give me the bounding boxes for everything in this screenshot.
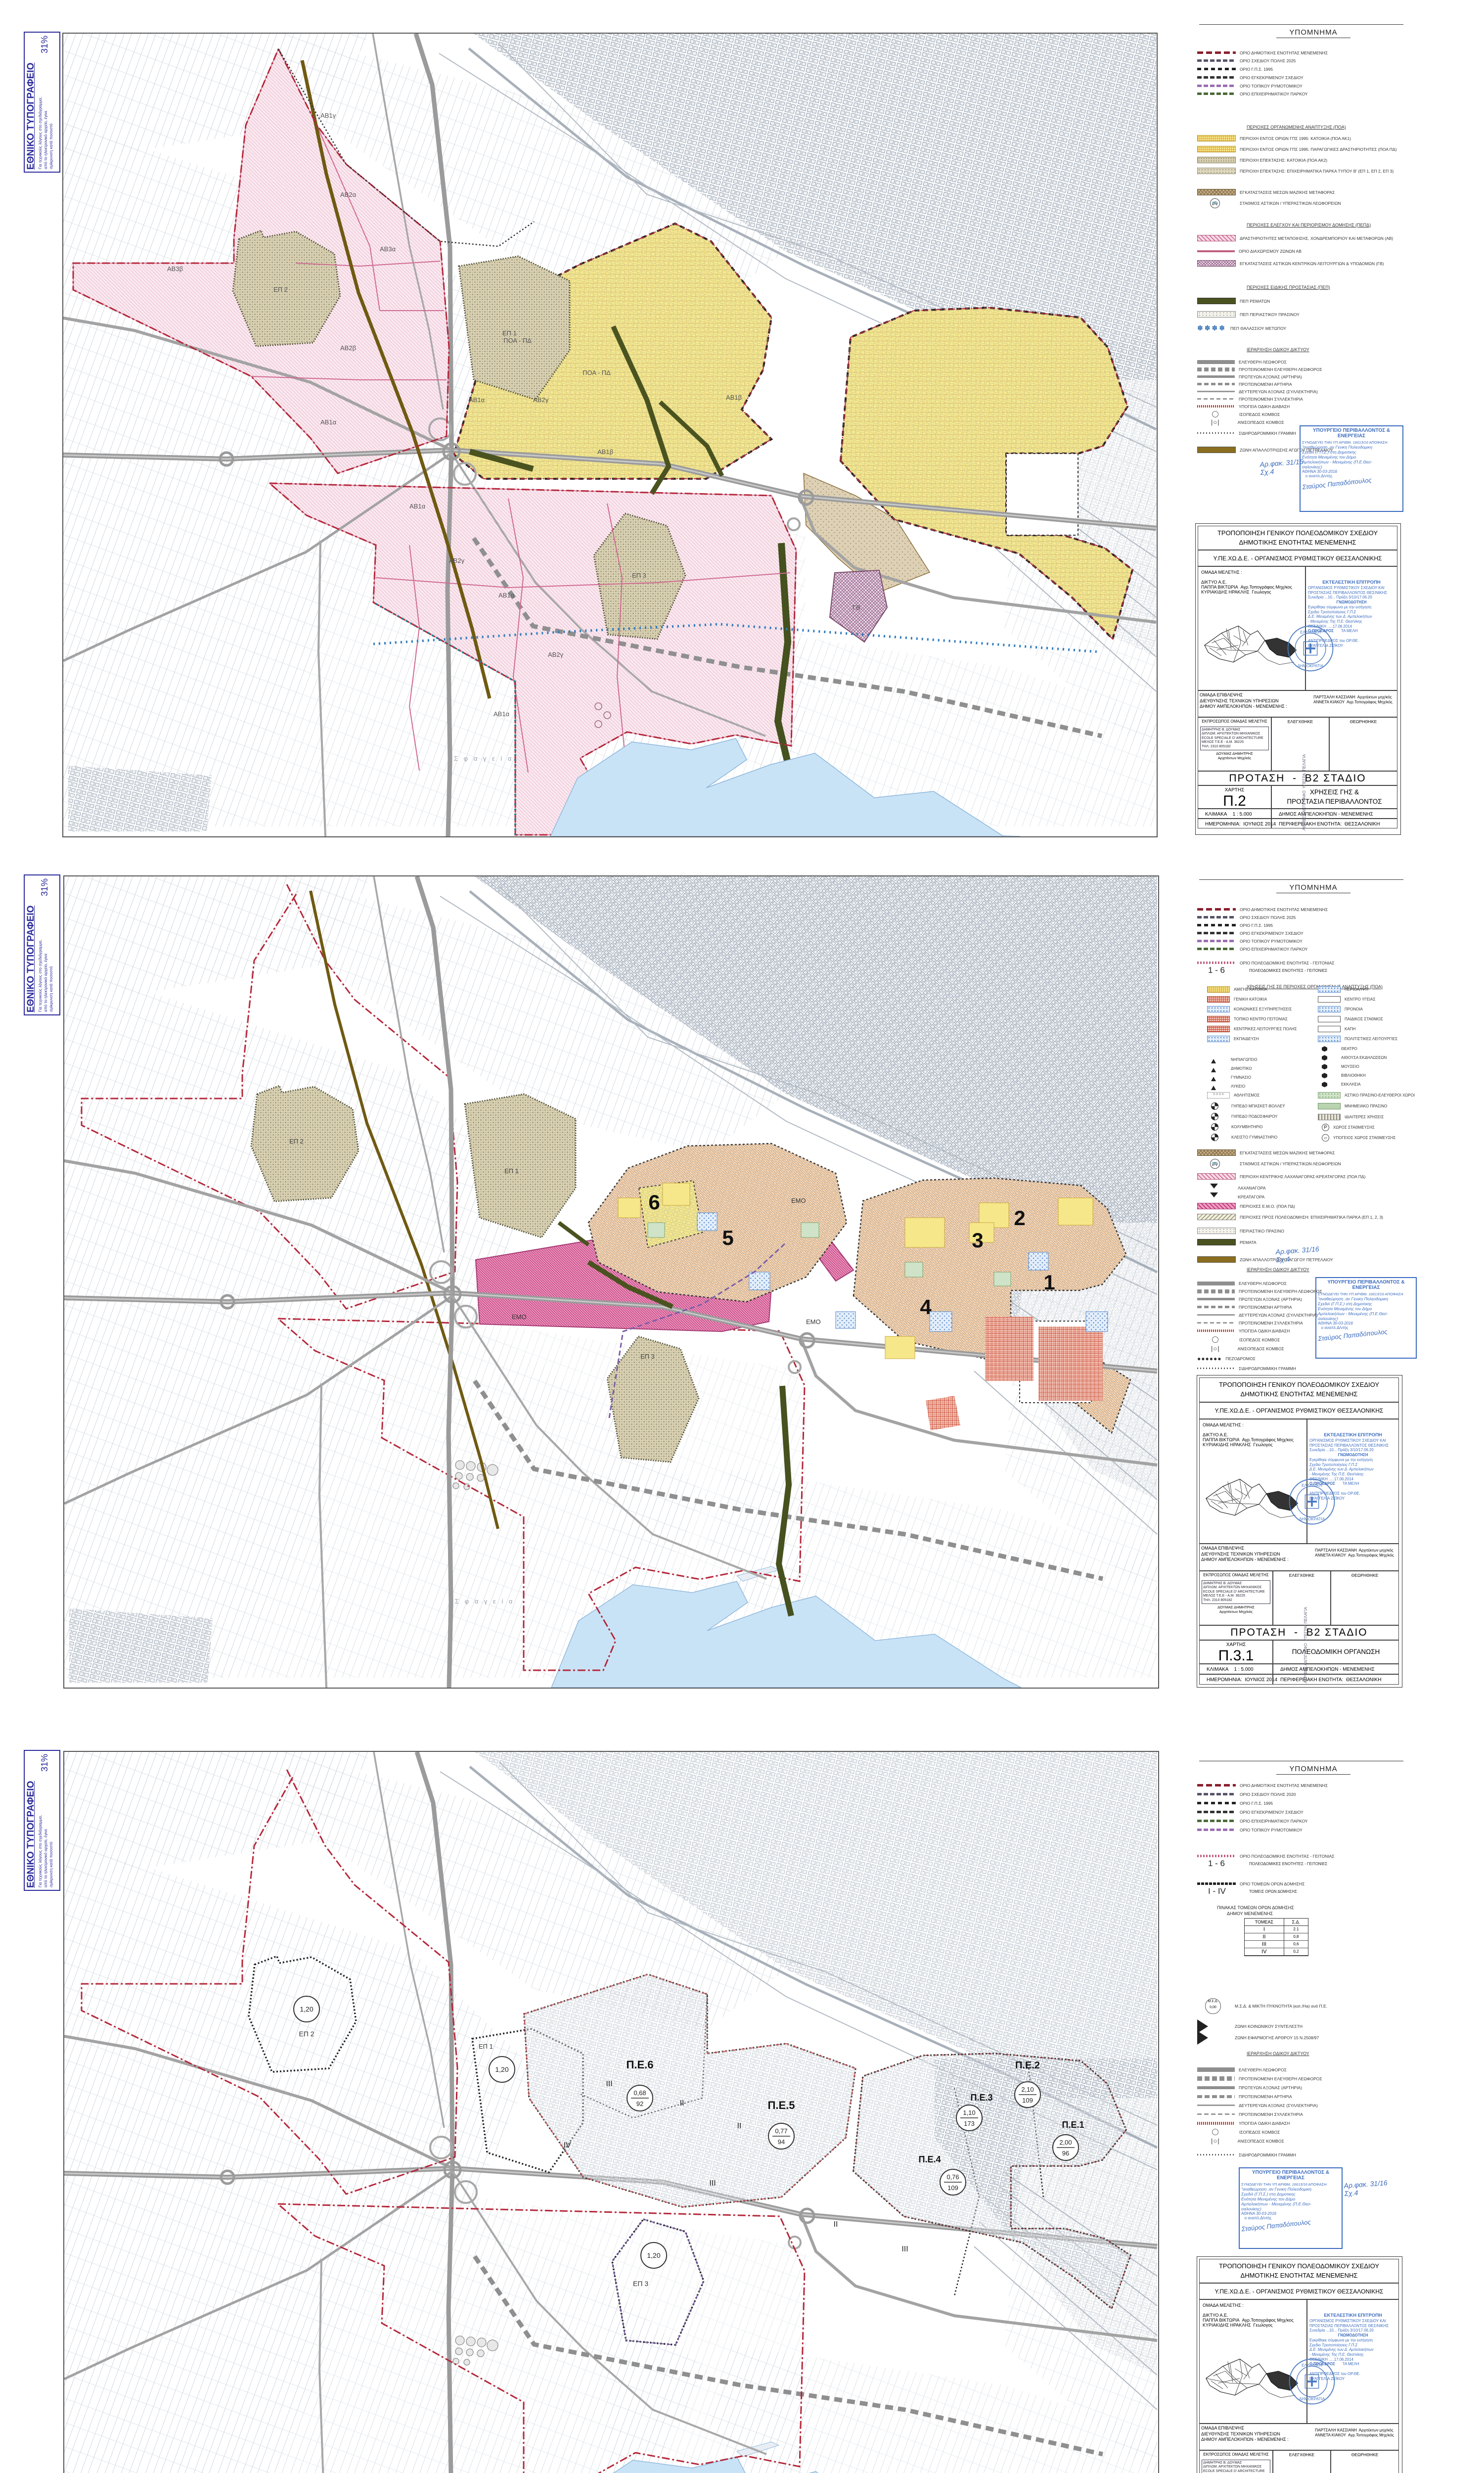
- svg-text:AB3β: AB3β: [167, 265, 183, 273]
- svg-text:AB1α: AB1α: [498, 592, 515, 599]
- svg-text:ΕΛΛΗΝΙΚΗ: ΕΛΛΗΝΙΚΗ: [1302, 1483, 1322, 1488]
- svg-text:0,76: 0,76: [946, 2173, 959, 2181]
- svg-text:0,68: 0,68: [633, 2089, 646, 2097]
- svg-text:AB2γ: AB2γ: [548, 651, 564, 658]
- svg-text:ΕΠ 1: ΕΠ 1: [502, 329, 517, 337]
- svg-text:109: 109: [947, 2184, 958, 2192]
- svg-text:1,20: 1,20: [300, 2005, 313, 2013]
- svg-text:AB1α: AB1α: [409, 503, 426, 510]
- svg-text:II: II: [834, 2220, 838, 2229]
- svg-text:AB1α: AB1α: [469, 396, 485, 404]
- svg-text:ΕΠ 2: ΕΠ 2: [273, 286, 288, 293]
- svg-text:Σ φ α γ ε ί α: Σ φ α γ ε ί α: [455, 1598, 514, 1605]
- svg-text:ΕΛΛΗΝΙΚΗ: ΕΛΛΗΝΙΚΗ: [1302, 2363, 1322, 2368]
- svg-text:AB2γ: AB2γ: [449, 557, 465, 564]
- svg-text:ΕΠ 3: ΕΠ 3: [632, 572, 646, 579]
- svg-text:2,00: 2,00: [1059, 2139, 1072, 2146]
- svg-text:173: 173: [964, 2120, 975, 2127]
- svg-text:1: 1: [1043, 1271, 1055, 1294]
- svg-text:AB1α: AB1α: [494, 710, 510, 718]
- svg-text:3: 3: [972, 1229, 983, 1252]
- svg-text:2: 2: [1014, 1206, 1025, 1230]
- svg-text:AB1β: AB1β: [726, 394, 742, 401]
- svg-text:EMO: EMO: [512, 1313, 527, 1321]
- svg-text:4: 4: [920, 1295, 932, 1319]
- svg-text:92: 92: [636, 2100, 643, 2107]
- svg-text:109: 109: [1022, 2097, 1033, 2104]
- svg-text:AB3α: AB3α: [380, 245, 396, 253]
- svg-text:AB2β: AB2β: [340, 344, 356, 352]
- svg-text:III: III: [606, 2080, 612, 2088]
- svg-text:6: 6: [648, 1191, 660, 1214]
- svg-text:Π.Ε.4: Π.Ε.4: [918, 2154, 941, 2164]
- svg-text:AB1γ: AB1γ: [320, 112, 336, 119]
- svg-text:ΓB: ΓB: [853, 604, 860, 611]
- svg-text:94: 94: [778, 2138, 785, 2146]
- svg-text:EMO: EMO: [806, 1318, 821, 1326]
- svg-text:Π.Ε.3: Π.Ε.3: [970, 2093, 992, 2103]
- svg-text:ΕΠ 2: ΕΠ 2: [299, 2030, 314, 2038]
- svg-text:ΕΠ 1: ΕΠ 1: [504, 1167, 519, 1175]
- svg-text:ΕΛΛΗΝΙΚΗ: ΕΛΛΗΝΙΚΗ: [1300, 630, 1321, 635]
- svg-text:ΕΠ 3: ΕΠ 3: [633, 2280, 648, 2288]
- svg-text:II: II: [680, 2099, 684, 2107]
- svg-text:AB1α: AB1α: [320, 418, 337, 426]
- svg-text:ΠΟΑ - ΠΔ: ΠΟΑ - ΠΔ: [583, 369, 611, 376]
- svg-text:IV: IV: [563, 2141, 571, 2150]
- svg-text:2,10: 2,10: [1021, 2086, 1034, 2093]
- svg-text:III: III: [709, 2179, 716, 2188]
- svg-text:1,10: 1,10: [963, 2109, 975, 2116]
- svg-text:96: 96: [1062, 2150, 1069, 2157]
- svg-text:ΠΟΑ - ΠΔ: ΠΟΑ - ΠΔ: [503, 337, 532, 344]
- svg-text:1,20: 1,20: [495, 2065, 508, 2073]
- svg-text:ΔΗΜΟΚΡΑΤΙΑ: ΔΗΜΟΚΡΑΤΙΑ: [1299, 2397, 1325, 2401]
- svg-text:Π.Ε.5: Π.Ε.5: [767, 2099, 795, 2111]
- svg-text:5: 5: [722, 1226, 733, 1249]
- svg-text:AB1β: AB1β: [597, 448, 613, 456]
- svg-text:1,20: 1,20: [647, 2251, 660, 2259]
- svg-text:II: II: [737, 2122, 742, 2130]
- svg-text:0,77: 0,77: [775, 2127, 787, 2135]
- svg-text:ΔΗΜΟΚΡΑΤΙΑ: ΔΗΜΟΚΡΑΤΙΑ: [1299, 1517, 1325, 1521]
- svg-text:ΕΠ 3: ΕΠ 3: [640, 1353, 655, 1360]
- svg-text:III: III: [901, 2245, 908, 2253]
- svg-text:EMO: EMO: [791, 1197, 806, 1204]
- svg-text:ΕΠ 2: ΕΠ 2: [289, 1138, 304, 1145]
- svg-text:AB2γ: AB2γ: [533, 396, 549, 404]
- svg-text:Σ φ α γ ε ί α: Σ φ α γ ε ί α: [454, 755, 513, 762]
- svg-text:Π.Ε.2: Π.Ε.2: [1015, 2060, 1040, 2071]
- svg-text:ΔΗΜΟΚΡΑΤΙΑ: ΔΗΜΟΚΡΑΤΙΑ: [1298, 664, 1324, 668]
- svg-text:Π.Ε.6: Π.Ε.6: [626, 2059, 653, 2071]
- svg-text:AB2α: AB2α: [340, 191, 357, 198]
- svg-text:Π.Ε.1: Π.Ε.1: [1062, 2120, 1084, 2130]
- svg-text:ΕΠ 1: ΕΠ 1: [479, 2043, 493, 2050]
